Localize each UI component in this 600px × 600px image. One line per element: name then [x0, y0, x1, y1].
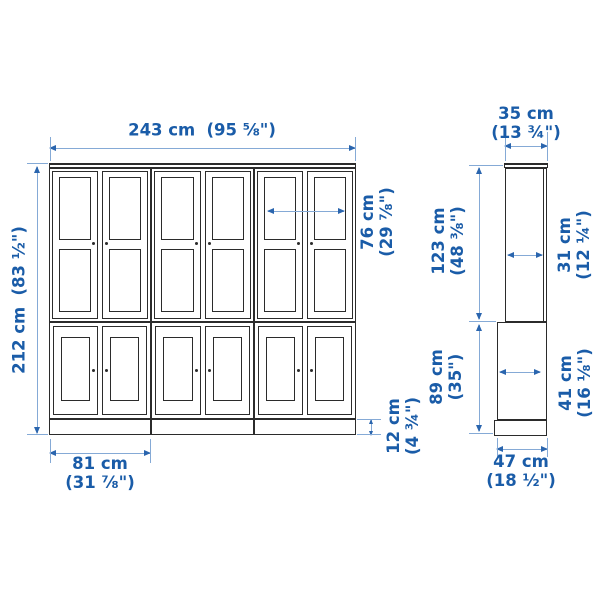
glass-pane-bottom — [314, 249, 346, 312]
side-upper-section — [505, 168, 547, 322]
plinth — [254, 419, 356, 435]
door-knob — [310, 369, 313, 372]
extension-line — [357, 434, 381, 435]
door-middle-rail — [264, 240, 296, 249]
metric-value: 76 cm — [358, 187, 377, 256]
base-depth-arrow — [497, 449, 547, 450]
glass-pane-bottom — [264, 249, 296, 312]
glass-door — [52, 171, 98, 319]
glass-pane-bottom — [161, 249, 194, 312]
door-panel — [213, 337, 243, 401]
top-depth-arrow — [505, 146, 547, 147]
side-plinth — [494, 420, 547, 436]
imperial-value: (83 ½") — [10, 226, 29, 295]
extension-line — [469, 165, 503, 166]
extension-line — [469, 433, 493, 434]
lower-depth-arrow — [500, 372, 540, 373]
door-panel — [266, 337, 295, 401]
door-knob — [105, 369, 108, 372]
door-knob — [105, 242, 108, 245]
glass-door — [257, 171, 303, 319]
upper-depth-arrow — [508, 255, 542, 256]
plinth — [151, 419, 254, 435]
extension-line — [27, 434, 48, 435]
door-knob — [297, 369, 300, 372]
glass-pane-top — [161, 177, 194, 240]
front-view — [49, 163, 356, 435]
imperial-value: (12 ¼") — [574, 210, 593, 279]
imperial-value: (13 ¾") — [491, 123, 560, 142]
glass-pane-bottom — [109, 249, 141, 312]
panel-door — [205, 326, 251, 415]
door-middle-rail — [314, 240, 346, 249]
side-back-panel-line — [543, 169, 544, 321]
metric-value: 12 cm — [384, 397, 403, 455]
door-panel — [315, 337, 344, 401]
top-depth-label: 35 cm (13 ¾") — [491, 104, 560, 142]
extension-line — [469, 321, 496, 322]
door-knob — [195, 369, 198, 372]
metric-value: 89 cm — [427, 349, 446, 405]
panel-door — [102, 326, 147, 415]
lower-height-arrow — [479, 325, 480, 431]
glass-door — [205, 171, 252, 319]
imperial-value: (4 ¾") — [403, 397, 422, 455]
panel-door — [155, 326, 201, 415]
total-width-arrow — [50, 148, 355, 149]
panel-door — [307, 326, 352, 415]
upper-unit — [49, 168, 151, 322]
door-panel — [163, 337, 193, 401]
door-panel — [110, 337, 139, 401]
imperial-value: (18 ½") — [486, 471, 555, 490]
total-height-label: 212 cm (83 ½") — [10, 226, 29, 374]
extension-line — [150, 439, 151, 463]
imperial-value: (16 ⅛") — [575, 348, 594, 417]
door-knob — [208, 369, 211, 372]
door-panel — [61, 337, 90, 401]
upper-unit — [151, 168, 254, 322]
base-depth-label: 47 cm (18 ½") — [486, 452, 555, 490]
upper-unit — [254, 168, 356, 322]
extension-line — [355, 137, 356, 161]
panel-door — [258, 326, 303, 415]
door-knob — [195, 242, 198, 245]
extension-line — [50, 439, 51, 463]
lower-unit — [49, 322, 151, 419]
extension-line — [50, 137, 51, 161]
metric-value: 212 cm — [10, 307, 29, 374]
upper-depth-label: 31 cm (12 ¼") — [555, 210, 593, 279]
metric-value: 35 cm — [491, 104, 560, 123]
door-middle-rail — [161, 240, 194, 249]
plinth — [49, 419, 151, 435]
door-knob — [310, 242, 313, 245]
upper-height-label: 123 cm (48 ⅜") — [429, 206, 467, 275]
lower-unit — [151, 322, 254, 419]
glass-door — [102, 171, 148, 319]
door-middle-rail — [212, 240, 245, 249]
metric-value: 47 cm — [486, 452, 555, 471]
door-middle-rail — [109, 240, 141, 249]
glass-pane-bottom — [212, 249, 245, 312]
imperial-value: (35") — [446, 349, 465, 405]
extension-line — [357, 419, 381, 420]
glass-door — [307, 171, 353, 319]
furniture-dimension-diagram: 243 cm (95 ⅝") 212 cm (83 ½") 76 cm (29 … — [0, 0, 600, 600]
total-height-arrow — [37, 167, 38, 433]
glass-door — [154, 171, 201, 319]
metric-value: 123 cm — [429, 206, 448, 275]
metric-value: 81 cm — [65, 454, 134, 473]
imperial-value: (31 ⅞") — [65, 473, 134, 492]
panel-door — [53, 326, 98, 415]
lower-unit — [254, 322, 356, 419]
door-width-label: 76 cm (29 ⅞") — [358, 187, 396, 256]
total-width-label: 243 cm (95 ⅝") — [128, 121, 276, 140]
imperial-value: (29 ⅞") — [377, 187, 396, 256]
door-knob — [297, 242, 300, 245]
extension-line — [27, 163, 48, 164]
door-middle-rail — [59, 240, 91, 249]
door-knob — [208, 242, 211, 245]
glass-pane-bottom — [59, 249, 91, 312]
glass-pane-top — [59, 177, 91, 240]
imperial-value: (48 ⅜") — [448, 206, 467, 275]
plinth-height-arrow — [371, 420, 372, 435]
door-knob — [92, 242, 95, 245]
lower-height-label: 89 cm (35") — [427, 349, 465, 405]
lower-depth-label: 41 cm (16 ⅛") — [556, 348, 594, 417]
plinth-height-label: 12 cm (4 ¾") — [384, 397, 422, 455]
imperial-value: (95 ⅝") — [206, 121, 275, 140]
metric-value: 31 cm — [555, 210, 574, 279]
side-view — [494, 163, 548, 436]
upper-height-arrow — [479, 168, 480, 319]
metric-value: 41 cm — [556, 348, 575, 417]
glass-pane-top — [212, 177, 245, 240]
unit-width-label: 81 cm (31 ⅞") — [65, 454, 134, 492]
glass-pane-top — [109, 177, 141, 240]
door-knob — [92, 369, 95, 372]
metric-value: 243 cm — [128, 121, 195, 140]
door-width-arrow — [268, 211, 344, 212]
